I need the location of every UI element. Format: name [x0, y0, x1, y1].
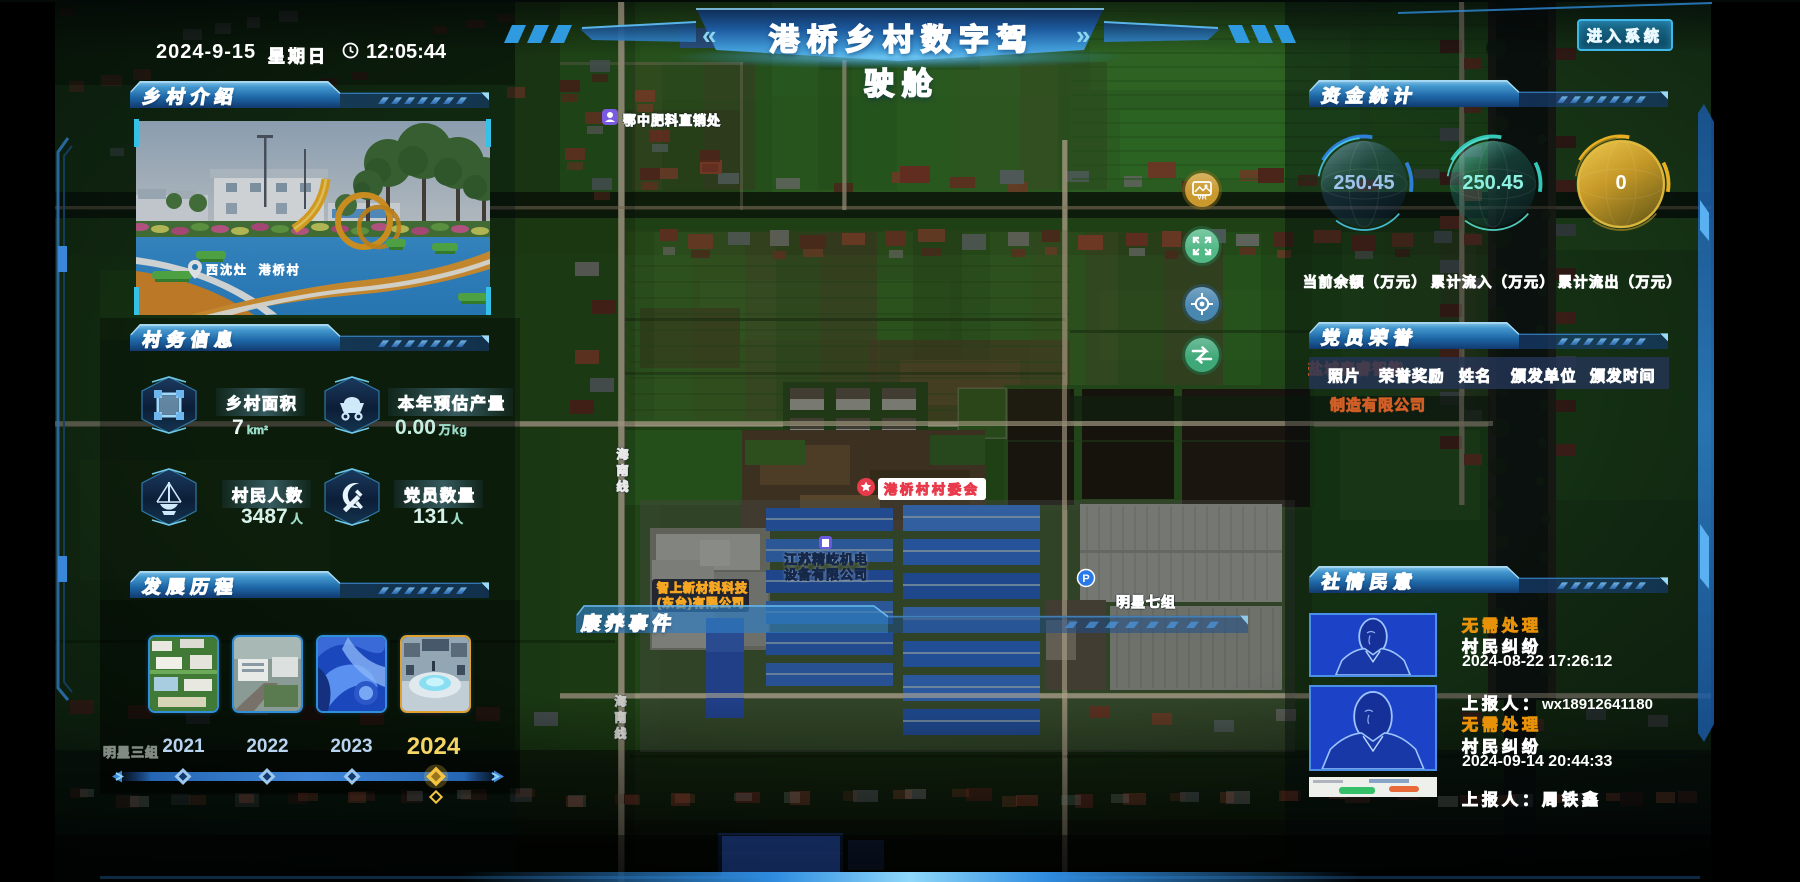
- svg-text:VR: VR: [1197, 195, 1207, 202]
- svg-text:P: P: [1082, 573, 1089, 585]
